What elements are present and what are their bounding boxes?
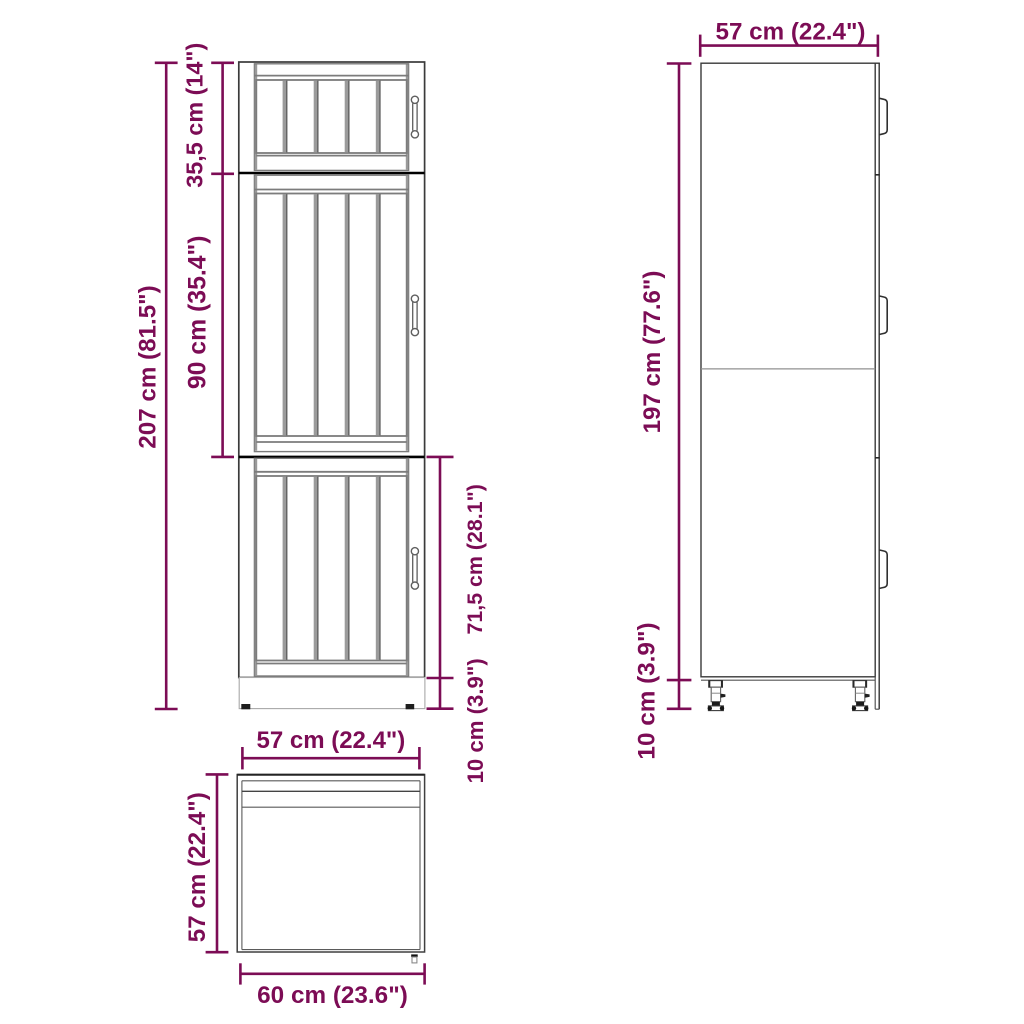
svg-text:207 cm (81.5"): 207 cm (81.5") [134,285,161,448]
svg-text:71,5 cm (28.1"): 71,5 cm (28.1") [463,484,487,634]
svg-text:90 cm (35.4"): 90 cm (35.4") [184,235,211,389]
svg-text:57 cm (22.4"): 57 cm (22.4") [257,727,406,754]
svg-text:35,5 cm (14"): 35,5 cm (14") [182,43,208,188]
svg-text:57 cm (22.4"): 57 cm (22.4") [716,18,866,45]
svg-text:10 cm (3.9"): 10 cm (3.9") [633,622,660,759]
svg-text:57 cm (22.4"): 57 cm (22.4") [184,792,211,942]
svg-text:10 cm (3.9"): 10 cm (3.9") [463,658,488,783]
svg-text:60 cm (23.6"): 60 cm (23.6") [257,982,408,1009]
svg-text:197 cm (77.6"): 197 cm (77.6") [639,271,666,434]
